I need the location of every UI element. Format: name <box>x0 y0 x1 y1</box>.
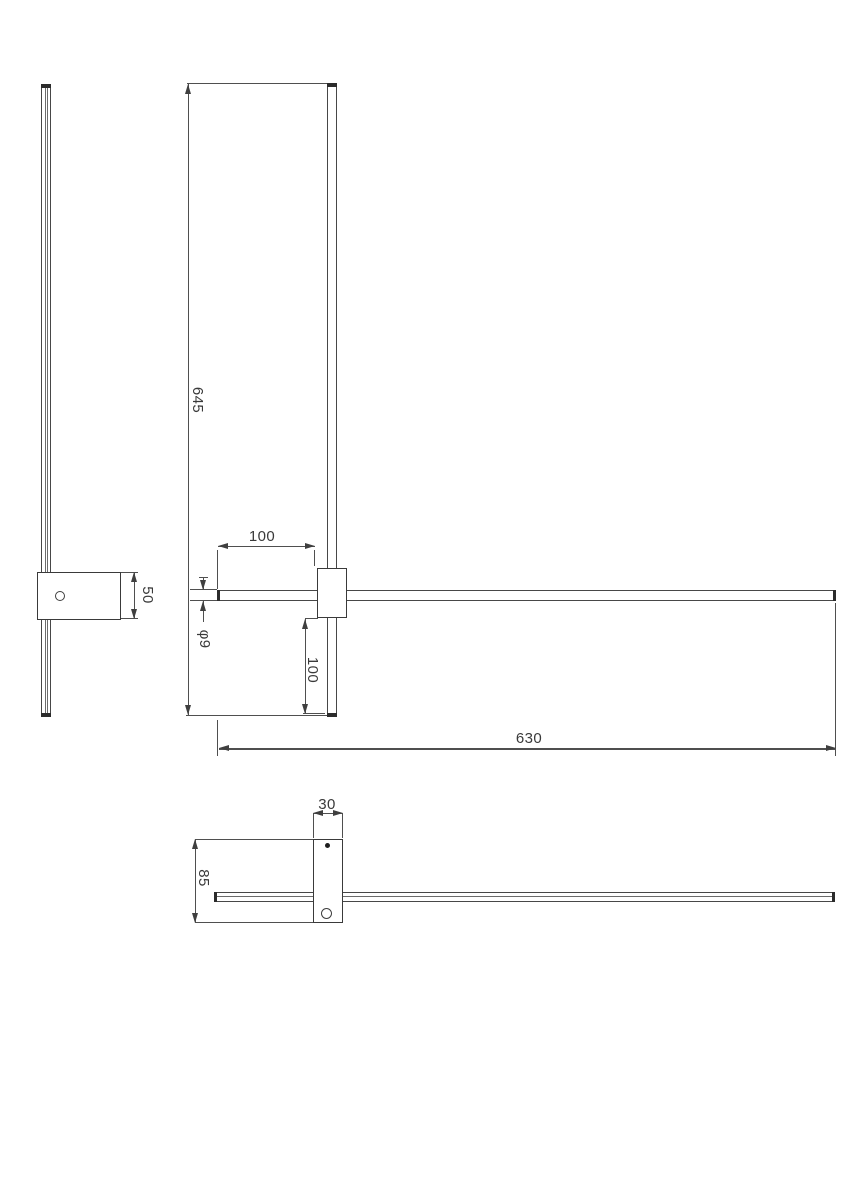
dim-30-label: 30 <box>312 797 342 813</box>
dim-630-line <box>219 748 836 750</box>
dim-630-arrow-left-icon <box>219 745 229 751</box>
dim-100-top-extension-left <box>217 550 218 589</box>
front-vertical-tube <box>327 83 337 717</box>
front-mounting-bracket <box>317 568 347 618</box>
dim-630-label: 630 <box>499 731 559 747</box>
dim-50-arrow-down-icon <box>131 609 137 619</box>
side-tube-top-cap <box>41 84 51 88</box>
front-horizontal-tube-left-cap <box>217 590 220 601</box>
dim-85-arrow-down-icon <box>192 913 198 923</box>
dim-85-extension-bottom <box>195 922 313 923</box>
bottom-view <box>0 0 1 1</box>
dim-645-arrow-up-icon <box>185 84 191 94</box>
dim-30-extension-right <box>342 814 343 838</box>
dim-85-arrow-up-icon <box>192 839 198 849</box>
dim-630-extension-left <box>217 720 218 756</box>
dim-phi9-arrow-down-icon <box>200 580 206 590</box>
dim-645-label: 645 <box>189 380 205 420</box>
bottom-bracket-screw-dot <box>325 843 330 848</box>
dim-85-label: 85 <box>195 863 211 893</box>
side-mounting-hole <box>55 591 65 601</box>
dim-630-arrow-right-icon <box>826 745 836 751</box>
front-vertical-tube-bottom-cap <box>327 713 337 717</box>
dim-100-bottom-label: 100 <box>304 650 320 690</box>
dim-100-top-arrow-right-icon <box>305 543 315 549</box>
dim-100-top-line <box>218 546 315 547</box>
dim-100-bottom-arrow-down-icon <box>302 704 308 714</box>
dim-phi9-label: φ9 <box>196 624 212 654</box>
bottom-tube-left-cap <box>214 892 217 902</box>
dim-100-top-extension-right <box>314 550 315 566</box>
dim-645-arrow-down-icon <box>185 705 191 715</box>
dim-phi9-tick <box>199 577 208 578</box>
front-horizontal-tube-right-cap <box>833 590 836 601</box>
dim-645-extension-top <box>187 83 337 84</box>
dim-phi9-arrow-up-icon <box>200 601 206 611</box>
front-vertical-tube-top-cap <box>327 83 337 87</box>
dim-50-arrow-up-icon <box>131 572 137 582</box>
side-tube <box>41 84 51 717</box>
dim-645-extension-bottom <box>186 715 331 716</box>
bottom-tube-right-cap <box>832 892 835 902</box>
bottom-tube-seam-line <box>216 896 833 897</box>
dim-100-top-arrow-left-icon <box>218 543 228 549</box>
dim-50-label: 50 <box>139 580 155 610</box>
side-tube-bottom-cap <box>41 713 51 717</box>
bottom-tube <box>214 892 835 902</box>
dim-100-top-label: 100 <box>242 529 282 545</box>
dim-30-extension-left <box>313 814 314 838</box>
dim-630-extension-right <box>835 603 836 756</box>
dim-100-bottom-arrow-up-icon <box>302 619 308 629</box>
dim-85-extension-top <box>195 839 313 840</box>
drawing-canvas: 50 645 100 φ9 100 630 <box>0 0 848 1200</box>
front-horizontal-tube <box>217 590 836 601</box>
side-mounting-bracket <box>37 572 121 620</box>
bottom-bracket-hole <box>321 908 332 919</box>
